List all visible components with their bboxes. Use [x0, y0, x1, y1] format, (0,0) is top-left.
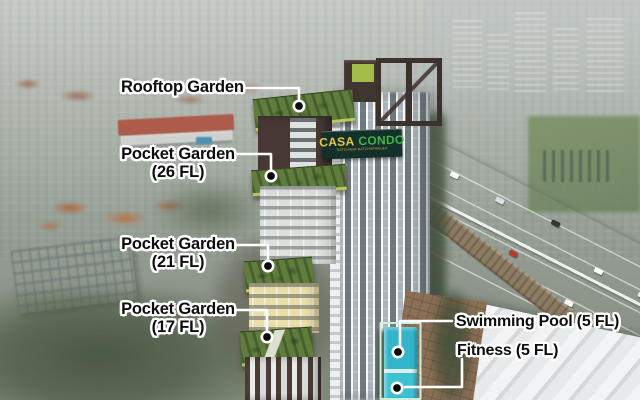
label-line: (26 FL): [120, 164, 236, 182]
teal-roof-buildings: [543, 150, 609, 182]
car: [550, 219, 560, 228]
yellow-facade-section: [249, 283, 319, 333]
swimming-pool-water: [384, 327, 417, 399]
car: [508, 249, 518, 258]
car: [593, 267, 603, 276]
highrise-building: [514, 12, 546, 96]
rooftop-pergola-frame: [376, 58, 442, 126]
highrise-building: [487, 34, 509, 90]
aerial-photo-scene: CASA CONDO RATCHADA-RATCHAPHRUEK Rooftop…: [0, 0, 640, 400]
sign-brand-condo: CONDO: [358, 134, 405, 148]
sign-brand-casa: CASA: [319, 135, 355, 148]
label-line: (17 FL): [120, 319, 236, 337]
label-rooftop-garden: Rooftop Garden: [121, 79, 244, 97]
car: [449, 171, 459, 180]
label-line: (21 FL): [120, 254, 236, 272]
casa-condo-sign-text: CASA CONDO: [319, 134, 405, 149]
label-pocket-garden-26fl: Pocket Garden (26 FL): [120, 146, 236, 181]
rooftop-lime-accent: [352, 64, 374, 82]
label-fitness: Fitness (5 FL): [457, 342, 558, 360]
highrise-building: [452, 20, 482, 92]
car: [495, 196, 505, 205]
sign-subtitle: RATCHADA-RATCHAPHRUEK: [337, 147, 388, 152]
label-pocket-garden-21fl: Pocket Garden (21 FL): [120, 236, 236, 271]
casa-condo-sign: CASA CONDO RATCHADA-RATCHAPHRUEK: [322, 129, 403, 160]
label-swimming-pool: Swimming Pool (5 FL): [456, 313, 619, 331]
lower-striped-facade: [245, 357, 321, 400]
label-line: Pocket Garden: [120, 236, 236, 254]
highrise-building: [553, 28, 579, 90]
mid-white-facade: [260, 186, 336, 264]
label-line: Pocket Garden: [120, 301, 236, 319]
hotel-pool: [196, 137, 212, 144]
label-pocket-garden-17fl: Pocket Garden (17 FL): [120, 301, 236, 336]
label-line: Pocket Garden: [120, 146, 236, 164]
highrise-building: [586, 18, 624, 92]
